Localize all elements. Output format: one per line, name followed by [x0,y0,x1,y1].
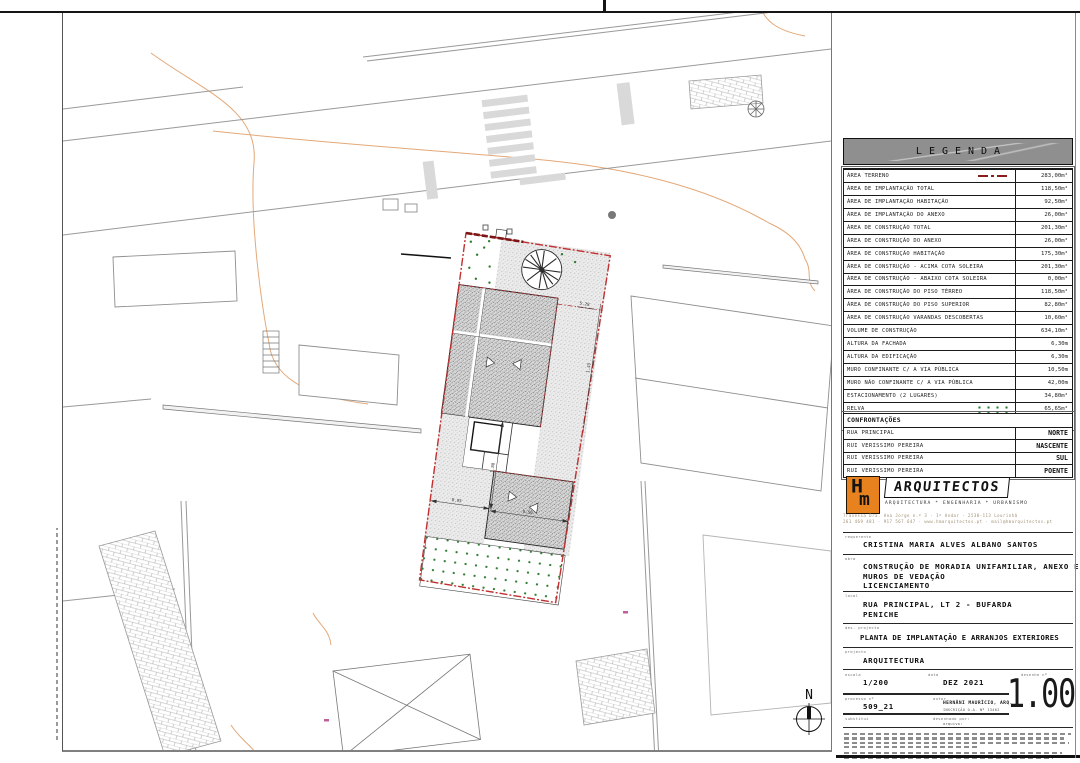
survey-mark [623,611,628,614]
legend-row-label: ALTURA DA EDIFICAÇÃO [847,354,917,360]
legend-header: LEGENDA [843,138,1073,165]
confrontacao-value: NASCENTE [1015,440,1072,452]
legend-row: ÁREA DE IMPLANTAÇÃO DO ANEXO 26,00m² [844,208,1072,221]
des-projecto-value: PLANTA DE IMPLANTAÇÃO E ARRANJOS EXTERIO… [860,633,1059,642]
legend-row-value: 26,00m² [1015,235,1072,247]
legend-row-label: MURO NÃO CONFINANTE C/ A VIA PÚBLICA [847,380,973,386]
plot: 8.95 1.88 9.50 1.45 5.28 [418,225,612,605]
main-house [441,285,558,427]
legend-row-value: 42,00m [1015,377,1072,389]
desenhado-label: desenhado por: [933,716,970,721]
site-plan-drawing: 8.95 1.88 9.50 1.45 5.28 [63,13,831,750]
divider [843,623,1073,624]
confrontacao-label: RUI VERISSIMO PEREIRA [844,453,1015,465]
legend-row-value: 6,30m [1015,351,1072,363]
legend-row-label: ALTURA DA FACHADA [847,341,906,347]
requerente-value: CRISTINA MARIA ALVES ALBANO SANTOS [863,540,1038,549]
escala-value: 1/200 [863,678,889,687]
fold-mark [603,0,606,11]
divider [843,554,1073,555]
legend-row-label: ÁREA DE IMPLANTAÇÃO HABITAÇÃO [847,199,948,205]
projecto-value: ARQUITECTURA [863,656,925,665]
legend-title: LEGENDA [909,146,1007,157]
confrontacao-label: RUI VERISSIMO PEREIRA [844,440,1015,452]
desenho-number: 1.00 [1007,672,1073,718]
legend-row: ÁREA DE CONSTRUÇÃO TOTAL 201,30m² [844,221,1072,234]
legend-row-label: ÁREA DE CONSTRUÇÃO TOTAL [847,225,931,231]
legend-row-value: 26,00m² [1015,209,1072,221]
legend-row-value: 10,50m [1015,364,1072,376]
obra-line2: MUROS DE VEDAÇÃO [863,572,945,581]
legend-symbol [974,405,1010,413]
divider [843,693,1009,695]
legend-row: ÁREA DE CONSTRUÇÃO DO PISO SUPERIOR 82,8… [844,298,1072,311]
crosswalk [416,82,641,200]
legend-row-label: ÁREA TERRENO [847,173,889,179]
arquivo-label: arquivo: [943,722,963,726]
legend-row-value: 201,30m² [1015,261,1072,273]
divider [843,727,1073,728]
legend-row: ÁREA DE CONSTRUÇÃO - ABAIXO COTA SOLEIRA… [844,273,1072,286]
legend-row-label: ÁREA DE CONSTRUÇÃO DO ANEXO [847,238,941,244]
requerente-label: requerente [845,534,871,539]
des-projecto-label: des. projecto [845,625,879,630]
legend-row-value: 10,60m² [1015,312,1072,324]
confrontacao-row: RUI VERISSIMO PEREIRA SUL [844,452,1072,465]
confrontacao-row: RUI VERISSIMO PEREIRA NASCENTE [844,439,1072,452]
legend-table: ÁREA TERRENO 283,00m² ÁREA DE IMPLANTAÇÃ… [843,168,1073,429]
legend-row-label: ÁREA DE IMPLANTAÇÃO DO ANEXO [847,212,945,218]
sheet-bottom-border [836,755,1080,758]
substitui-label: substitui [845,716,869,721]
legend-row-label: ÁREA DE CONSTRUÇÃO VARANDAS DESCOBERTAS [847,315,983,321]
legend-row-value: 118,50m² [1015,183,1072,195]
legend-symbol [978,175,1010,178]
legend-row-value: 92,50m² [1015,196,1072,208]
site-plan-area: 8.95 1.88 9.50 1.45 5.28 [62,13,832,752]
legend-row-value: 634,10m³ [1015,325,1072,337]
autor-line2: INSCRIÇÃO O.A. Nº 13462 [943,708,1000,712]
legend-row-value: 0,00m² [1015,274,1072,286]
data-label: data [928,672,939,677]
legend-row-value: 118,50m² [1015,286,1072,298]
legend-row-label: ESTACIONAMENTO (2 LUGARES) [847,393,938,399]
title-block-column: LEGENDA ÁREA TERRENO 283,00m² ÁREA DE IM… [843,13,1073,760]
firm-tagline: ARQUITECTURA * ENGENHARIA * URBANISMO [885,501,1028,506]
firm-address: Travessa Dra. Ana Jorge n.º 3 · 1º Andar… [843,513,1052,525]
divider [843,669,1073,670]
processo-value: 509_21 [863,702,894,711]
confrontacao-value: SUL [1015,453,1072,465]
autor-line1: HERNÂNI MAURÍCIO, ARQ. [943,701,1013,706]
legend-row-value: 34,80m² [1015,390,1072,402]
legend-row: ALTURA DA FACHADA 6,30m [844,337,1072,350]
legend-row: ESTACIONAMENTO (2 LUGARES) 34,80m² [844,389,1072,402]
legend-row-label: ÁREA DE CONSTRUÇÃO DO PISO TÉRREO [847,289,962,295]
data-value: DEZ 2021 [943,678,984,687]
manhole [608,211,616,219]
survey-mark [324,719,329,722]
logo-letter-m: m [859,489,870,510]
legend-row-label: ÁREA DE CONSTRUÇÃO - ABAIXO COTA SOLEIRA [847,276,987,282]
legend-row: ÁREA TERRENO 283,00m² [844,169,1072,182]
obra-line3: LICENCIAMENTO [863,581,930,590]
legend-row-value: 175,30m² [1015,248,1072,260]
legend-row-label: ÁREA DE CONSTRUÇÃO DO PISO SUPERIOR [847,302,969,308]
legend-row-value: 82,80m² [1015,299,1072,311]
divider [843,647,1073,648]
legend-row: MURO NÃO CONFINANTE C/ A VIA PÚBLICA 42,… [844,376,1072,389]
legend-row: VOLUME DE CONSTRUÇÃO 634,10m³ [844,324,1072,337]
legend-row-label: ÁREA DE CONSTRUÇÃO - ACIMA COTA SOLEIRA [847,264,983,270]
confrontacao-row: RUA PRINCIPAL NORTE [844,427,1072,440]
legend-row: ÁREA DE CONSTRUÇÃO - ACIMA COTA SOLEIRA … [844,260,1072,273]
divider [843,713,1009,715]
legend-row: ÁREA DE CONSTRUÇÃO DO ANEXO 26,00m² [844,234,1072,247]
firm-address-line2: 261 469 481 · 917 567 647 · www.hmarquit… [843,519,1052,525]
legend-row-label: RELVA [847,406,864,412]
margin-vertical-text [56,528,58,740]
obra-line1: CONSTRUÇÃO DE MORADIA UNIFAMILIAR, ANEXO… [863,562,1079,571]
confrontacoes-rows: RUA PRINCIPAL NORTE RUI VERISSIMO PEREIR… [844,427,1072,477]
small-tree-symbol [748,101,764,117]
legend-row: ÁREA DE IMPLANTAÇÃO HABITAÇÃO 92,50m² [844,195,1072,208]
legend-row-value: 283,00m² [1015,170,1072,182]
obra-label: obra [845,556,856,561]
projecto-label: projecto [845,649,866,654]
legend-row-label: VOLUME DE CONSTRUÇÃO [847,328,917,334]
legend-row: ALTURA DA EDIFICAÇÃO 6,30m [844,350,1072,363]
sheet-right-border [1075,13,1076,758]
legend-row: ÁREA DE CONSTRUÇÃO HABITAÇÃO 175,30m² [844,247,1072,260]
legend-row: MURO CONFINANTE C/ A VIA PÚBLICA 10,50m [844,363,1072,376]
local-line1: RUA PRINCIPAL, LT 2 - BUFARDA [863,600,1012,609]
firm-logo: H m [846,476,880,514]
legend-row-label: ÁREA DE IMPLANTAÇÃO TOTAL [847,186,934,192]
firm-name: ARQUITECTOS [884,477,1010,498]
divider [843,591,1073,592]
north-label: N [805,688,813,703]
local-line2: PENICHE [863,610,899,619]
confrontacao-value: NORTE [1015,428,1072,440]
firm-block: H m ARQUITECTOS ARQUITECTURA * ENGENHARI… [843,474,1073,532]
processo-label: processo nº [845,696,874,701]
confrontacoes-table: CONFRONTAÇÕES RUA PRINCIPAL NORTE RUI VE… [843,413,1073,478]
local-label: local [845,593,858,598]
legend-row: ÁREA DE CONSTRUÇÃO VARANDAS DESCOBERTAS … [844,311,1072,324]
legend-row: ÁREA DE IMPLANTAÇÃO TOTAL 118,50m² [844,182,1072,195]
legend-row-value: 6,30m [1015,338,1072,350]
confrontacao-label: RUA PRINCIPAL [844,428,1015,440]
wall-mark [401,254,451,258]
divider [843,532,1073,533]
legend-row: ÁREA DE CONSTRUÇÃO DO PISO TÉRREO 118,50… [844,285,1072,298]
escala-label: escala [845,672,861,677]
drawing-sheet: 8.95 1.88 9.50 1.45 5.28 [0,0,1080,763]
legend-row-label: MURO CONFINANTE C/ A VIA PÚBLICA [847,367,959,373]
confrontacoes-title: CONFRONTAÇÕES [844,414,1072,427]
legend-row-label: ÁREA DE CONSTRUÇÃO HABITAÇÃO [847,251,945,257]
building-cross [333,654,480,750]
legend-row-value: 201,30m² [1015,222,1072,234]
